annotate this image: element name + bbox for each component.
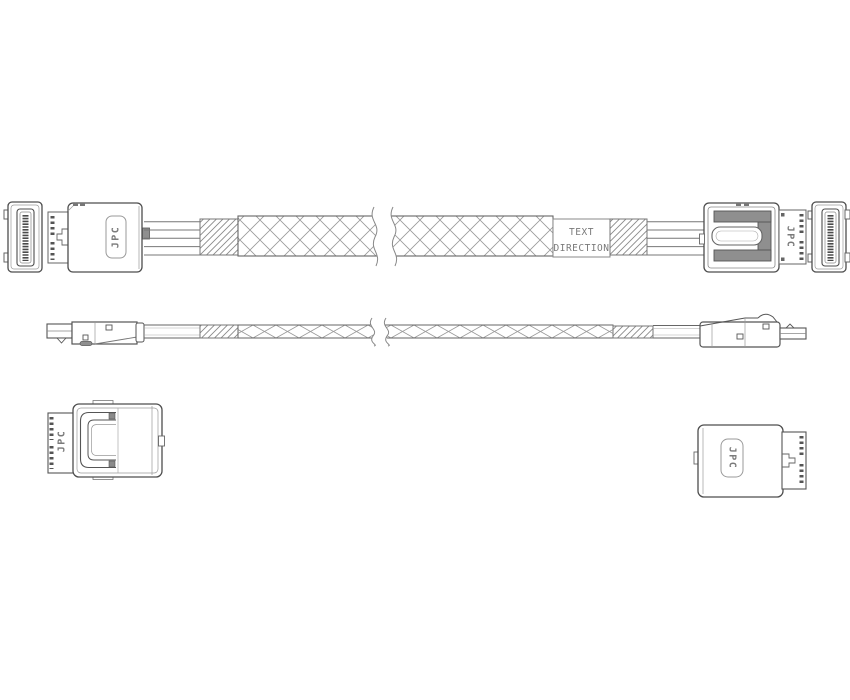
side-right-body [700, 314, 780, 347]
detail-left-shell [73, 404, 162, 477]
body-right-top-tick1 [736, 203, 741, 206]
side-right-latch-hump [758, 314, 777, 322]
right-paddle-strip: JPC [779, 210, 806, 264]
side-right-window2 [763, 324, 769, 329]
detail-left-latch-end-top [109, 413, 115, 419]
plan-view: JPC TEXT DIRECTION [4, 202, 850, 272]
detail-right-paddle [782, 432, 806, 489]
brand-label-right: JPC [785, 226, 796, 249]
right-connector-body [700, 203, 780, 272]
latch-tongue [712, 227, 762, 245]
body-left-top-tick1 [73, 203, 78, 206]
detail-left-latch-end-bottom [109, 461, 115, 467]
detail-right-paddle-outline [782, 432, 806, 489]
side-left-latch-hook [57, 338, 66, 343]
body-right-top-tick2 [744, 203, 749, 206]
detail-left-connector: JPC [48, 401, 165, 480]
side-left-latch-spring [80, 342, 92, 346]
left-wire-bundle [144, 222, 200, 255]
side-view [47, 314, 806, 347]
brand-label-left: JPC [111, 226, 122, 249]
right-connector-face-view [808, 202, 850, 272]
sleeve-print-line1: TEXT [569, 227, 594, 238]
face-right-bump-bottom [845, 253, 850, 262]
cable-drawing: JPC TEXT DIRECTION [0, 0, 850, 700]
side-left-window1 [106, 325, 112, 330]
side-left-window2 [83, 335, 88, 340]
sleeve-print-line2: DIRECTION [554, 243, 610, 254]
side-right-window1 [737, 334, 743, 339]
brand-label-detail-left: JPC [57, 430, 68, 453]
side-left-end-cap [136, 323, 144, 342]
right-wire-bundle [647, 222, 704, 255]
face-right-bump-top [845, 210, 850, 219]
side-left-body [72, 322, 144, 346]
side-cable [144, 318, 700, 346]
drawing-canvas: JPC TEXT DIRECTION [0, 0, 850, 700]
right-heatshrink-hatch [610, 219, 647, 255]
brand-label-detail-right: JPC [727, 447, 738, 470]
side-braided-sleeve [238, 325, 613, 338]
detail-left-paddle: JPC [48, 413, 75, 473]
side-left-body-outline [72, 322, 137, 344]
sleeve-print-label: TEXT DIRECTION [553, 219, 610, 257]
body-right-entry-nub [700, 234, 705, 244]
side-right-latch-hook [786, 324, 794, 328]
left-connector-body: JPC [68, 203, 150, 272]
left-connector-face-view [4, 202, 42, 272]
side-left-tip [47, 324, 72, 343]
detail-left-body [73, 401, 165, 480]
paddle-right-pin-top [781, 213, 785, 217]
left-heatshrink-hatch [200, 219, 238, 255]
side-left-heatshrink [200, 325, 238, 338]
braided-sleeve [238, 216, 553, 256]
body-left-top-tick2 [80, 203, 85, 206]
side-right-tip [780, 324, 806, 339]
latch-bar-top [714, 211, 771, 222]
detail-left-exit-nub [159, 436, 165, 446]
body-left-shell [68, 203, 142, 272]
paddle-right-pin-bottom [781, 258, 785, 262]
detail-right-connector: JPC [694, 425, 806, 497]
side-right-heatshrink [613, 326, 653, 338]
detail-right-body: JPC [694, 425, 783, 497]
latch-bar-bottom [714, 250, 771, 261]
